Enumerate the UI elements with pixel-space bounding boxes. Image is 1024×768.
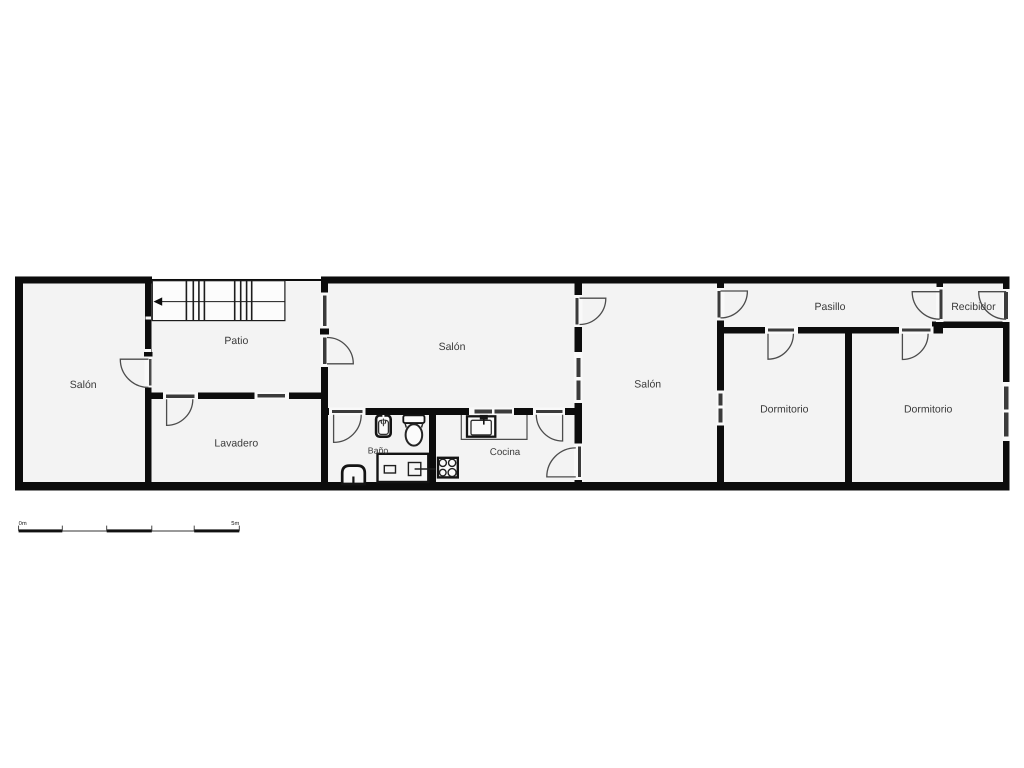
svg-text:Cocina: Cocina [490,447,521,458]
svg-text:Patio: Patio [224,335,248,347]
svg-text:Dormitorio: Dormitorio [904,404,953,416]
svg-text:Lavadero: Lavadero [214,438,258,450]
svg-text:Salón: Salón [439,341,466,353]
svg-text:Dormitorio: Dormitorio [760,404,809,416]
svg-text:0m: 0m [19,520,27,527]
svg-text:Pasillo: Pasillo [815,301,846,313]
svg-text:Baño: Baño [368,446,389,456]
svg-text:Salón: Salón [70,379,97,391]
svg-text:Salón: Salón [634,379,661,391]
svg-text:5m: 5m [231,521,239,527]
svg-text:Recibidor: Recibidor [951,301,996,313]
